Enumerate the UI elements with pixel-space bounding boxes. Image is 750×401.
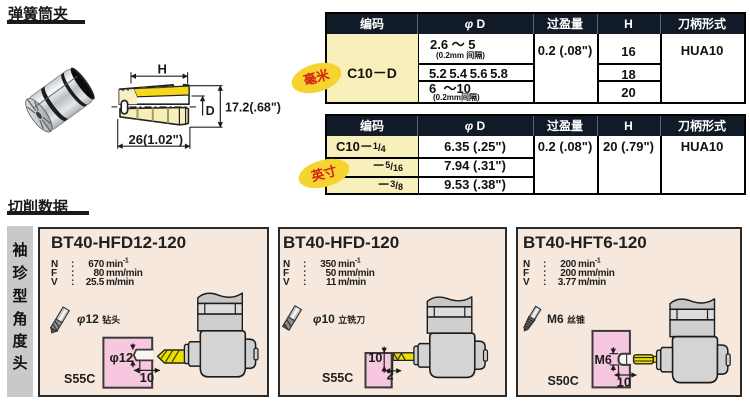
svg-text:S50C: S50C bbox=[548, 374, 579, 388]
svg-text:2: 2 bbox=[387, 369, 394, 383]
svg-text:S55C: S55C bbox=[64, 372, 95, 386]
svg-text:17.2(.68"): 17.2(.68") bbox=[225, 100, 281, 114]
svg-text:S55C: S55C bbox=[322, 371, 353, 385]
svg-text:D: D bbox=[206, 104, 215, 118]
svg-text:H: H bbox=[158, 62, 167, 77]
svg-text:26(1.02"): 26(1.02") bbox=[129, 132, 184, 147]
svg-text:M6: M6 bbox=[595, 353, 612, 367]
svg-text:10: 10 bbox=[368, 351, 382, 365]
svg-text:10: 10 bbox=[140, 370, 154, 385]
svg-text:10: 10 bbox=[617, 374, 631, 389]
svg-text:φ12: φ12 bbox=[110, 350, 134, 365]
